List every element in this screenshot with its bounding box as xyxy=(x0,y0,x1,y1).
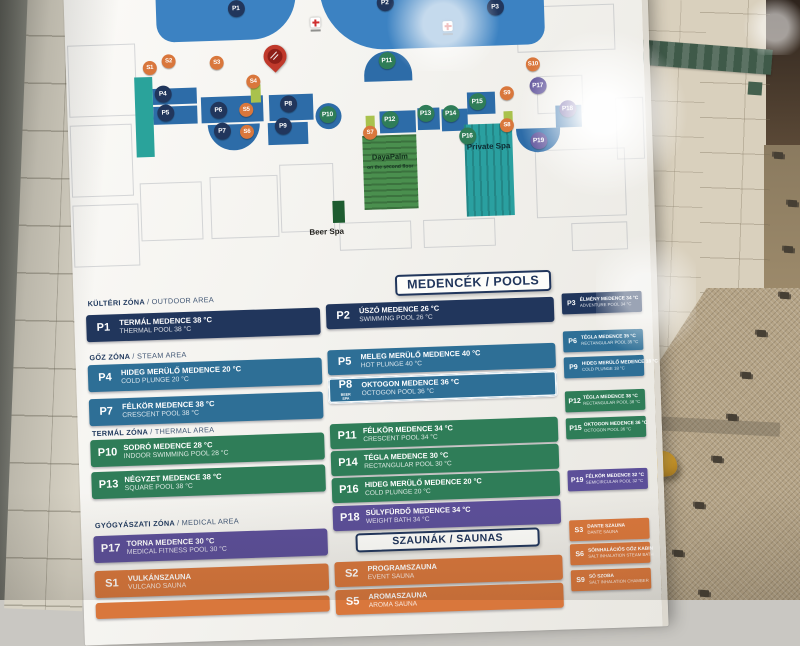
plan-room xyxy=(140,181,204,241)
legend-name-en: VULCANO SAUNA xyxy=(128,582,192,592)
legend-chip-p10: P10SODRÓ MEDENCE 28 °CINDOOR SWIMMING PO… xyxy=(90,432,325,467)
floor-motif-tile xyxy=(674,550,683,557)
legend-chip-p8: P8BEER SPAOKTOGON MEDENCE 36 °COCTOGON P… xyxy=(328,371,557,404)
map-marker-p14: P14 xyxy=(442,104,460,122)
legend-chip-s2: S2PROGRAMSZAUNAEVENT SAUNA xyxy=(334,555,563,588)
legend-column-2: P2ÚSZÓ MEDENCE 26 °CSWIMMING POOL 26 °CP… xyxy=(325,270,565,637)
legend-code: S1 xyxy=(100,578,124,590)
legend-code: P19 xyxy=(571,477,584,484)
first-aid-cross-icon xyxy=(442,21,452,31)
legend-chip-p6: P6TÉGLA MEDENCE 35 °CRECTANGULAR POOL 35… xyxy=(563,329,644,353)
legend-name-en: CRESCENT POOL 38 °C xyxy=(122,409,215,420)
floor-motif-tile xyxy=(742,372,751,379)
legend-name-en: RECTANGULAR POOL 35 °C xyxy=(581,340,638,347)
outdoor-pool-left xyxy=(155,0,297,43)
legend-code: S9 xyxy=(574,577,587,584)
legend-name-en: EVENT SAUNA xyxy=(368,572,438,582)
floor-motif-tile xyxy=(695,502,704,509)
facility-floorplan-map: DayaPalm on the second floor Private Spa… xyxy=(63,0,650,286)
map-marker-s10: S10 xyxy=(526,57,540,71)
plan-room xyxy=(72,203,140,267)
legend-chip-s1: S1VULKÁNSZAUNAVULCANO SAUNA xyxy=(94,563,329,598)
zone-header: KÜLTÉRI ZÓNA / OUTDOOR AREA xyxy=(87,295,214,308)
map-marker-s3: S3 xyxy=(209,56,223,70)
map-marker-s1: S1 xyxy=(143,61,157,75)
map-marker-p11: P11 xyxy=(378,51,396,69)
legend-chip-p15: P15OKTOGON MEDENCE 36 °COCTOGON POOL 36 … xyxy=(566,416,647,440)
plan-room xyxy=(423,218,496,248)
legend-name-en: RECTANGULAR POOL 30 °C xyxy=(364,460,452,470)
zone-header: GYÓGYÁSZATI ZÓNA / MEDICAL AREA xyxy=(95,516,239,530)
green-accent-tile xyxy=(748,82,763,96)
legend-chip-p7: P7FÉLKÖR MEDENCE 38 °CCRESCENT POOL 38 °… xyxy=(89,391,324,426)
legend-code: S2 xyxy=(340,568,364,580)
map-marker-p10: P10 xyxy=(319,105,337,123)
floor-motif-tile xyxy=(788,200,797,207)
beer-spa-block xyxy=(332,201,345,223)
dayspa-block xyxy=(362,134,418,210)
plan-room xyxy=(571,221,628,251)
legend-code: P14 xyxy=(336,457,360,469)
legend-code: P6 xyxy=(566,338,579,345)
floor-motif-tile xyxy=(774,152,783,159)
legend-code: P17 xyxy=(99,543,123,555)
legend-chip-p4: P4HIDEG MERÜLŐ MEDENCE 20 °CCOLD PLUNGE … xyxy=(88,358,323,393)
legend: MEDENCÉK / POOLS KÜLTÉRI ZÓNA / OUTDOOR … xyxy=(73,267,663,646)
dayspa-label: DayaPalm xyxy=(363,152,417,162)
floor-motif-tile xyxy=(700,590,709,597)
legend-code: P18 xyxy=(338,512,362,524)
outdoor-pool-right xyxy=(319,0,545,51)
floor-motif-tile xyxy=(784,246,793,253)
map-marker-p17: P17 xyxy=(529,76,547,94)
floor-motif-tile xyxy=(757,330,766,337)
legend-code: S3 xyxy=(572,527,585,534)
legend-chip-p9: P9HIDEG MERÜLŐ MEDENCE 18 °CCOLD PLUNGE … xyxy=(564,355,645,379)
first-aid-cross-icon xyxy=(310,17,320,27)
legend-chip-p1: P1TERMÁL MEDENCE 38 °CTHERMAL POOL 38 °C xyxy=(86,308,321,343)
map-marker-s2: S2 xyxy=(161,54,175,68)
saunas-title: SZAUNÁK / SAUNAS xyxy=(355,527,540,552)
map-marker-s9: S9 xyxy=(500,86,514,100)
legend-chip-s6: S6SÓINHALÁCIÓS GŐZ KABINSALT INHALATION … xyxy=(570,542,651,566)
map-marker-p6: P6 xyxy=(209,101,227,119)
legend-code-sublabel: BEER SPA xyxy=(341,392,351,400)
plan-room xyxy=(615,97,645,160)
legend-name-en: SALT INHALATION CHAMBER xyxy=(589,579,649,586)
legend-code: P1 xyxy=(91,322,115,334)
legend-name-en: AROMA SAUNA xyxy=(369,600,428,610)
map-marker-p18: P18 xyxy=(559,99,577,117)
legend-name-en: RECTANGULAR POOL 38 °C xyxy=(583,400,640,407)
map-marker-p19: P19 xyxy=(530,131,548,149)
legend-code: P8BEER SPA xyxy=(333,380,358,401)
legend-column-3: P3ÉLMÉNY MEDENCE 34 °CADVENTURE POOL 34 … xyxy=(561,267,653,629)
legend-chip-s3: S3DANTE SZAUNADANTE SAUNA xyxy=(569,518,650,542)
map-marker-p1: P1 xyxy=(227,0,245,17)
floor-motif-tile xyxy=(728,414,737,421)
legend-code: P15 xyxy=(569,425,582,432)
legend-name-en: SWIMMING POOL 26 °C xyxy=(359,314,439,324)
map-marker-p7: P7 xyxy=(213,122,231,140)
map-marker-p12: P12 xyxy=(381,110,399,128)
legend-column-1: KÜLTÉRI ZÓNA / OUTDOOR AREAP1TERMÁL MEDE… xyxy=(85,278,331,646)
legend-code: S6 xyxy=(573,551,586,558)
legend-chip-p5: P5MELEG MERÜLŐ MEDENCE 40 °CHOT PLUNGE 4… xyxy=(327,343,556,376)
legend-name-en: SEMICIRCULAR POOL 32 °C xyxy=(586,479,645,486)
legend-code: P2 xyxy=(331,310,355,322)
legend-code: P4 xyxy=(93,372,117,384)
legend-name-en: THERMAL POOL 38 °C xyxy=(119,325,212,336)
legend-code: P3 xyxy=(565,300,578,307)
pool-map-sign: DayaPalm on the second floor Private Spa… xyxy=(63,0,668,646)
legend-code: S5 xyxy=(340,596,364,608)
legend-code: P7 xyxy=(94,406,118,418)
legend-name-en: COLD PLUNGE 18 °C xyxy=(582,365,658,372)
map-marker-p4: P4 xyxy=(154,85,172,103)
you-are-here-pin-icon xyxy=(259,40,292,73)
map-marker-p15: P15 xyxy=(468,92,486,110)
legend-chip-s5: S5AROMASZAUNAAROMA SAUNA xyxy=(335,583,564,616)
legend-code: P16 xyxy=(337,484,361,496)
legend-code: P5 xyxy=(333,356,357,368)
map-marker-p5: P5 xyxy=(157,104,175,122)
legend-chip-p16: P16HIDEG MERÜLŐ MEDENCE 20 °CCOLD PLUNGE… xyxy=(332,471,561,504)
legend-chip-p12: P12TÉGLA MEDENCE 38 °CRECTANGULAR POOL 3… xyxy=(565,389,646,413)
legend-name-en: ADVENTURE POOL 34 °C xyxy=(580,302,639,309)
plan-room xyxy=(70,124,134,198)
teal-strip xyxy=(134,77,155,158)
map-marker-p8: P8 xyxy=(279,95,297,113)
legend-name-en: CRESCENT POOL 34 °C xyxy=(363,433,453,444)
legend-chip-p18: P18SÚLYFÜRDŐ MEDENCE 34 °CWEIGHT BATH 34… xyxy=(332,499,561,532)
legend-chip-p2: P2ÚSZÓ MEDENCE 26 °CSWIMMING POOL 26 °C xyxy=(326,297,555,330)
legend-chip-partial xyxy=(96,595,330,619)
legend-code: P11 xyxy=(335,430,359,442)
plan-room xyxy=(67,44,137,118)
legend-code: P12 xyxy=(568,398,581,405)
legend-code: P13 xyxy=(96,479,120,491)
plan-room xyxy=(535,147,627,218)
doorway-opening xyxy=(766,0,800,155)
map-marker-p3: P3 xyxy=(486,0,504,15)
legend-code: P10 xyxy=(95,447,119,459)
legend-name-en: SALT INHALATION STEAM BATH xyxy=(588,552,653,559)
map-marker-p16: P16 xyxy=(458,127,476,145)
legend-chip-p17: P17TORNA MEDENCE 30 °CMEDICAL FITNESS PO… xyxy=(93,528,328,563)
legend-name-en: DANTE SAUNA xyxy=(587,529,625,535)
legend-chip-p13: P13NÉGYZET MEDENCE 38 °CSQUARE POOL 38 °… xyxy=(91,464,326,499)
zone-header: GŐZ ZÓNA / STEAM AREA xyxy=(89,350,187,362)
plan-room xyxy=(209,175,279,239)
map-marker-p13: P13 xyxy=(417,104,435,122)
legend-chip-s9: S9SÓ SZOBASALT INHALATION CHAMBER xyxy=(571,568,652,592)
plan-room xyxy=(279,163,335,233)
legend-code: P9 xyxy=(567,364,580,371)
legend-name-en: OCTOGON POOL 36 °C xyxy=(584,427,648,434)
legend-chip-p19: P19FÉLKÖR MEDENCE 32 °CSEMICIRCULAR POOL… xyxy=(567,468,648,492)
floor-motif-tile xyxy=(780,292,789,299)
legend-chip-p3: P3ÉLMÉNY MEDENCE 34 °CADVENTURE POOL 34 … xyxy=(562,291,643,315)
map-marker-p9: P9 xyxy=(274,117,292,135)
floor-motif-tile xyxy=(713,456,722,463)
